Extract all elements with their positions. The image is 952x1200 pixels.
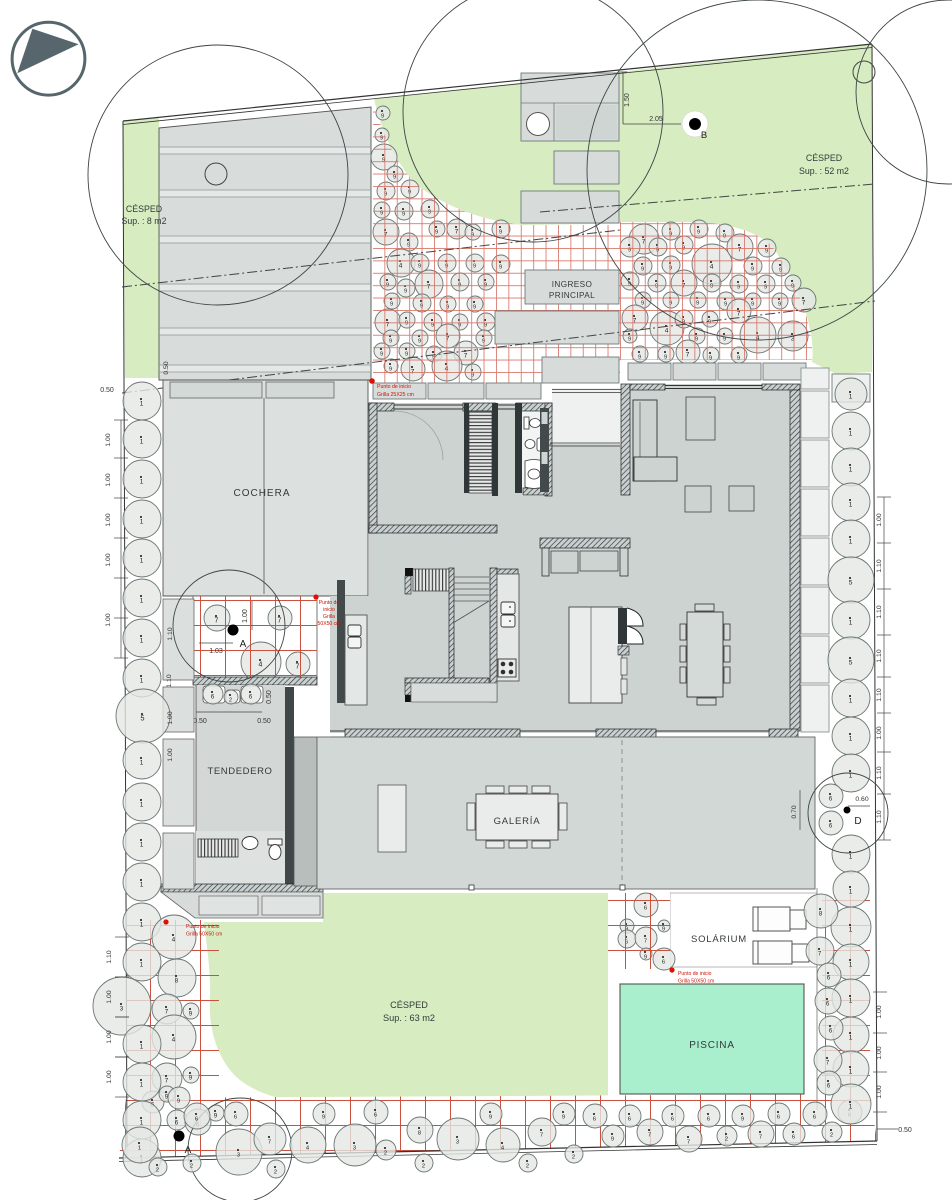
- svg-text:1.10: 1.10: [876, 649, 883, 662]
- svg-text:GALERÍA: GALERÍA: [494, 816, 541, 827]
- svg-text:1.10: 1.10: [876, 810, 883, 823]
- svg-text:Grilla: Grilla: [323, 614, 335, 620]
- svg-text:9: 9: [741, 1117, 744, 1123]
- svg-text:D: D: [854, 816, 861, 827]
- svg-text:Sup. : 8 m2: Sup. : 8 m2: [122, 216, 167, 226]
- svg-text:1.10: 1.10: [166, 674, 173, 687]
- svg-text:1.10: 1.10: [876, 605, 883, 618]
- svg-text:1.00: 1.00: [106, 990, 113, 1003]
- svg-text:1.10: 1.10: [106, 950, 113, 963]
- svg-text:1: 1: [849, 467, 853, 474]
- svg-text:1: 1: [140, 802, 144, 809]
- svg-text:7: 7: [540, 1133, 543, 1139]
- svg-text:1.00: 1.00: [167, 711, 174, 724]
- svg-text:1: 1: [140, 1120, 144, 1127]
- svg-text:7: 7: [165, 1078, 169, 1085]
- svg-text:0.70: 0.70: [791, 805, 798, 818]
- svg-text:1.10: 1.10: [876, 766, 883, 779]
- svg-text:1: 1: [849, 1069, 853, 1076]
- svg-text:1.10: 1.10: [876, 559, 883, 572]
- svg-text:4: 4: [172, 1037, 176, 1044]
- svg-text:1.00: 1.00: [876, 1046, 883, 1059]
- svg-text:2: 2: [229, 698, 232, 704]
- svg-text:1.10: 1.10: [167, 627, 174, 640]
- svg-text:5: 5: [849, 660, 853, 667]
- svg-text:1: 1: [849, 998, 853, 1005]
- svg-text:0.50: 0.50: [163, 361, 170, 374]
- svg-text:6: 6: [707, 1117, 710, 1123]
- svg-text:0.60: 0.60: [855, 796, 868, 803]
- svg-text:TENDEDERO: TENDEDERO: [207, 766, 272, 777]
- svg-text:Punto de inicio: Punto de inicio: [678, 971, 712, 977]
- svg-text:9: 9: [214, 1113, 218, 1120]
- svg-text:1: 1: [140, 760, 144, 767]
- svg-text:1: 1: [140, 882, 144, 889]
- svg-text:1: 1: [849, 431, 853, 438]
- svg-text:1: 1: [140, 678, 144, 685]
- svg-text:1.00: 1.00: [105, 613, 112, 626]
- svg-text:1.00: 1.00: [106, 1030, 113, 1043]
- svg-text:9: 9: [177, 1099, 180, 1105]
- svg-text:Grilla 50X50 cm: Grilla 50X50 cm: [678, 979, 714, 985]
- svg-text:0.50: 0.50: [898, 1127, 912, 1134]
- svg-text:1.10: 1.10: [876, 688, 883, 701]
- svg-text:1: 1: [140, 598, 144, 605]
- svg-text:50X50 cm: 50X50 cm: [318, 621, 341, 627]
- svg-text:CÉSPED: CÉSPED: [126, 204, 162, 214]
- svg-text:2: 2: [156, 1168, 159, 1174]
- svg-text:5: 5: [849, 580, 853, 587]
- svg-text:3: 3: [237, 1153, 240, 1159]
- svg-text:1.00: 1.00: [242, 609, 249, 623]
- svg-text:1.00: 1.00: [876, 1005, 883, 1018]
- svg-text:6: 6: [628, 1117, 631, 1123]
- svg-text:1: 1: [140, 922, 144, 929]
- svg-text:1.03: 1.03: [209, 648, 223, 655]
- svg-text:8: 8: [418, 1131, 421, 1137]
- svg-text:9: 9: [489, 1115, 492, 1121]
- svg-text:1: 1: [140, 479, 144, 486]
- svg-text:INGRESO: INGRESO: [552, 280, 593, 289]
- svg-text:1: 1: [140, 638, 144, 645]
- svg-text:2: 2: [422, 1164, 425, 1170]
- svg-text:3: 3: [353, 1146, 356, 1152]
- svg-text:7: 7: [687, 1140, 690, 1146]
- svg-text:0.50: 0.50: [257, 718, 271, 725]
- svg-text:COCHERA: COCHERA: [233, 488, 290, 499]
- svg-text:1: 1: [849, 1035, 853, 1042]
- svg-text:6: 6: [195, 1117, 198, 1123]
- svg-text:Grilla 25X25 cm: Grilla 25X25 cm: [377, 392, 414, 398]
- svg-text:Sup. : 52 m2: Sup. : 52 m2: [799, 166, 849, 176]
- svg-text:6: 6: [777, 1115, 780, 1121]
- svg-text:1: 1: [849, 889, 853, 896]
- svg-text:1.00: 1.00: [105, 433, 112, 446]
- svg-text:1.00: 1.00: [876, 726, 883, 739]
- svg-text:Punto de inicio: Punto de inicio: [186, 924, 220, 930]
- svg-text:1: 1: [849, 927, 853, 934]
- svg-text:Punto de: Punto de: [319, 600, 340, 606]
- svg-text:2: 2: [526, 1164, 529, 1170]
- svg-text:9: 9: [562, 1115, 565, 1121]
- svg-text:6: 6: [234, 1115, 237, 1121]
- svg-text:PISCINA: PISCINA: [689, 1040, 735, 1051]
- svg-text:Punto de inicio: Punto de inicio: [377, 384, 411, 390]
- svg-text:Sup. : 63 m2: Sup. : 63 m2: [383, 1013, 435, 1023]
- svg-text:3: 3: [456, 1140, 459, 1146]
- svg-text:1.00: 1.00: [106, 1070, 113, 1083]
- svg-text:9: 9: [189, 1011, 193, 1018]
- svg-text:6: 6: [792, 1135, 795, 1141]
- svg-text:1.00: 1.00: [876, 1085, 883, 1098]
- svg-text:6: 6: [671, 1117, 674, 1123]
- svg-text:5: 5: [140, 714, 144, 723]
- svg-text:1: 1: [849, 394, 853, 401]
- svg-text:6: 6: [374, 1113, 377, 1119]
- svg-text:1.00: 1.00: [105, 553, 112, 566]
- svg-text:2: 2: [830, 1133, 833, 1139]
- svg-text:1.00: 1.00: [167, 748, 174, 761]
- svg-text:1: 1: [140, 1044, 144, 1051]
- svg-text:Grilla 50X50 cm: Grilla 50X50 cm: [186, 932, 222, 938]
- svg-text:7: 7: [268, 1140, 271, 1146]
- svg-text:2: 2: [274, 1170, 277, 1176]
- svg-text:1: 1: [849, 736, 853, 743]
- svg-text:1: 1: [849, 962, 853, 969]
- svg-text:1: 1: [849, 539, 853, 546]
- svg-text:1: 1: [140, 842, 144, 849]
- svg-text:1.00: 1.00: [105, 473, 112, 486]
- svg-text:1: 1: [138, 1146, 141, 1152]
- svg-text:7: 7: [759, 1135, 762, 1141]
- svg-text:1: 1: [849, 1104, 853, 1111]
- svg-text:2: 2: [725, 1137, 728, 1143]
- svg-text:2.05: 2.05: [649, 116, 663, 123]
- svg-text:1: 1: [849, 854, 853, 861]
- svg-text:1.00: 1.00: [105, 513, 112, 526]
- svg-text:2: 2: [190, 1164, 193, 1170]
- svg-text:6: 6: [593, 1117, 596, 1123]
- svg-text:CÉSPED: CÉSPED: [806, 153, 842, 163]
- svg-text:0.50: 0.50: [193, 718, 207, 725]
- svg-text:9: 9: [381, 114, 384, 120]
- svg-text:SOLÁRIUM: SOLÁRIUM: [691, 934, 747, 945]
- svg-text:4: 4: [172, 937, 176, 944]
- svg-text:A: A: [240, 639, 247, 650]
- svg-text:9: 9: [611, 1137, 614, 1143]
- svg-text:1.00: 1.00: [876, 513, 883, 526]
- svg-text:inicio: inicio: [323, 607, 335, 613]
- svg-text:1: 1: [140, 1082, 144, 1089]
- svg-text:9: 9: [322, 1115, 325, 1121]
- svg-text:7: 7: [648, 1133, 651, 1139]
- svg-text:1: 1: [849, 502, 853, 509]
- svg-text:6: 6: [813, 1115, 816, 1121]
- svg-text:1: 1: [140, 439, 144, 446]
- svg-text:CÉSPED: CÉSPED: [390, 1000, 428, 1010]
- svg-text:B: B: [701, 130, 707, 141]
- svg-text:9: 9: [189, 1075, 193, 1082]
- svg-text:1: 1: [140, 558, 144, 565]
- svg-text:6: 6: [175, 1120, 179, 1127]
- svg-text:3: 3: [120, 1006, 124, 1013]
- svg-text:1.50: 1.50: [624, 93, 631, 107]
- svg-text:2: 2: [384, 1151, 387, 1157]
- svg-text:0.50: 0.50: [100, 387, 114, 394]
- svg-text:1: 1: [849, 620, 853, 627]
- svg-text:8: 8: [175, 978, 179, 985]
- svg-text:0.50: 0.50: [266, 690, 273, 704]
- svg-text:1: 1: [140, 401, 144, 408]
- svg-text:1: 1: [849, 698, 853, 705]
- svg-text:PRINCIPAL: PRINCIPAL: [549, 291, 595, 300]
- svg-text:2: 2: [572, 1155, 575, 1161]
- svg-text:7: 7: [165, 1009, 169, 1016]
- svg-text:1: 1: [140, 519, 144, 526]
- svg-text:1: 1: [140, 962, 144, 969]
